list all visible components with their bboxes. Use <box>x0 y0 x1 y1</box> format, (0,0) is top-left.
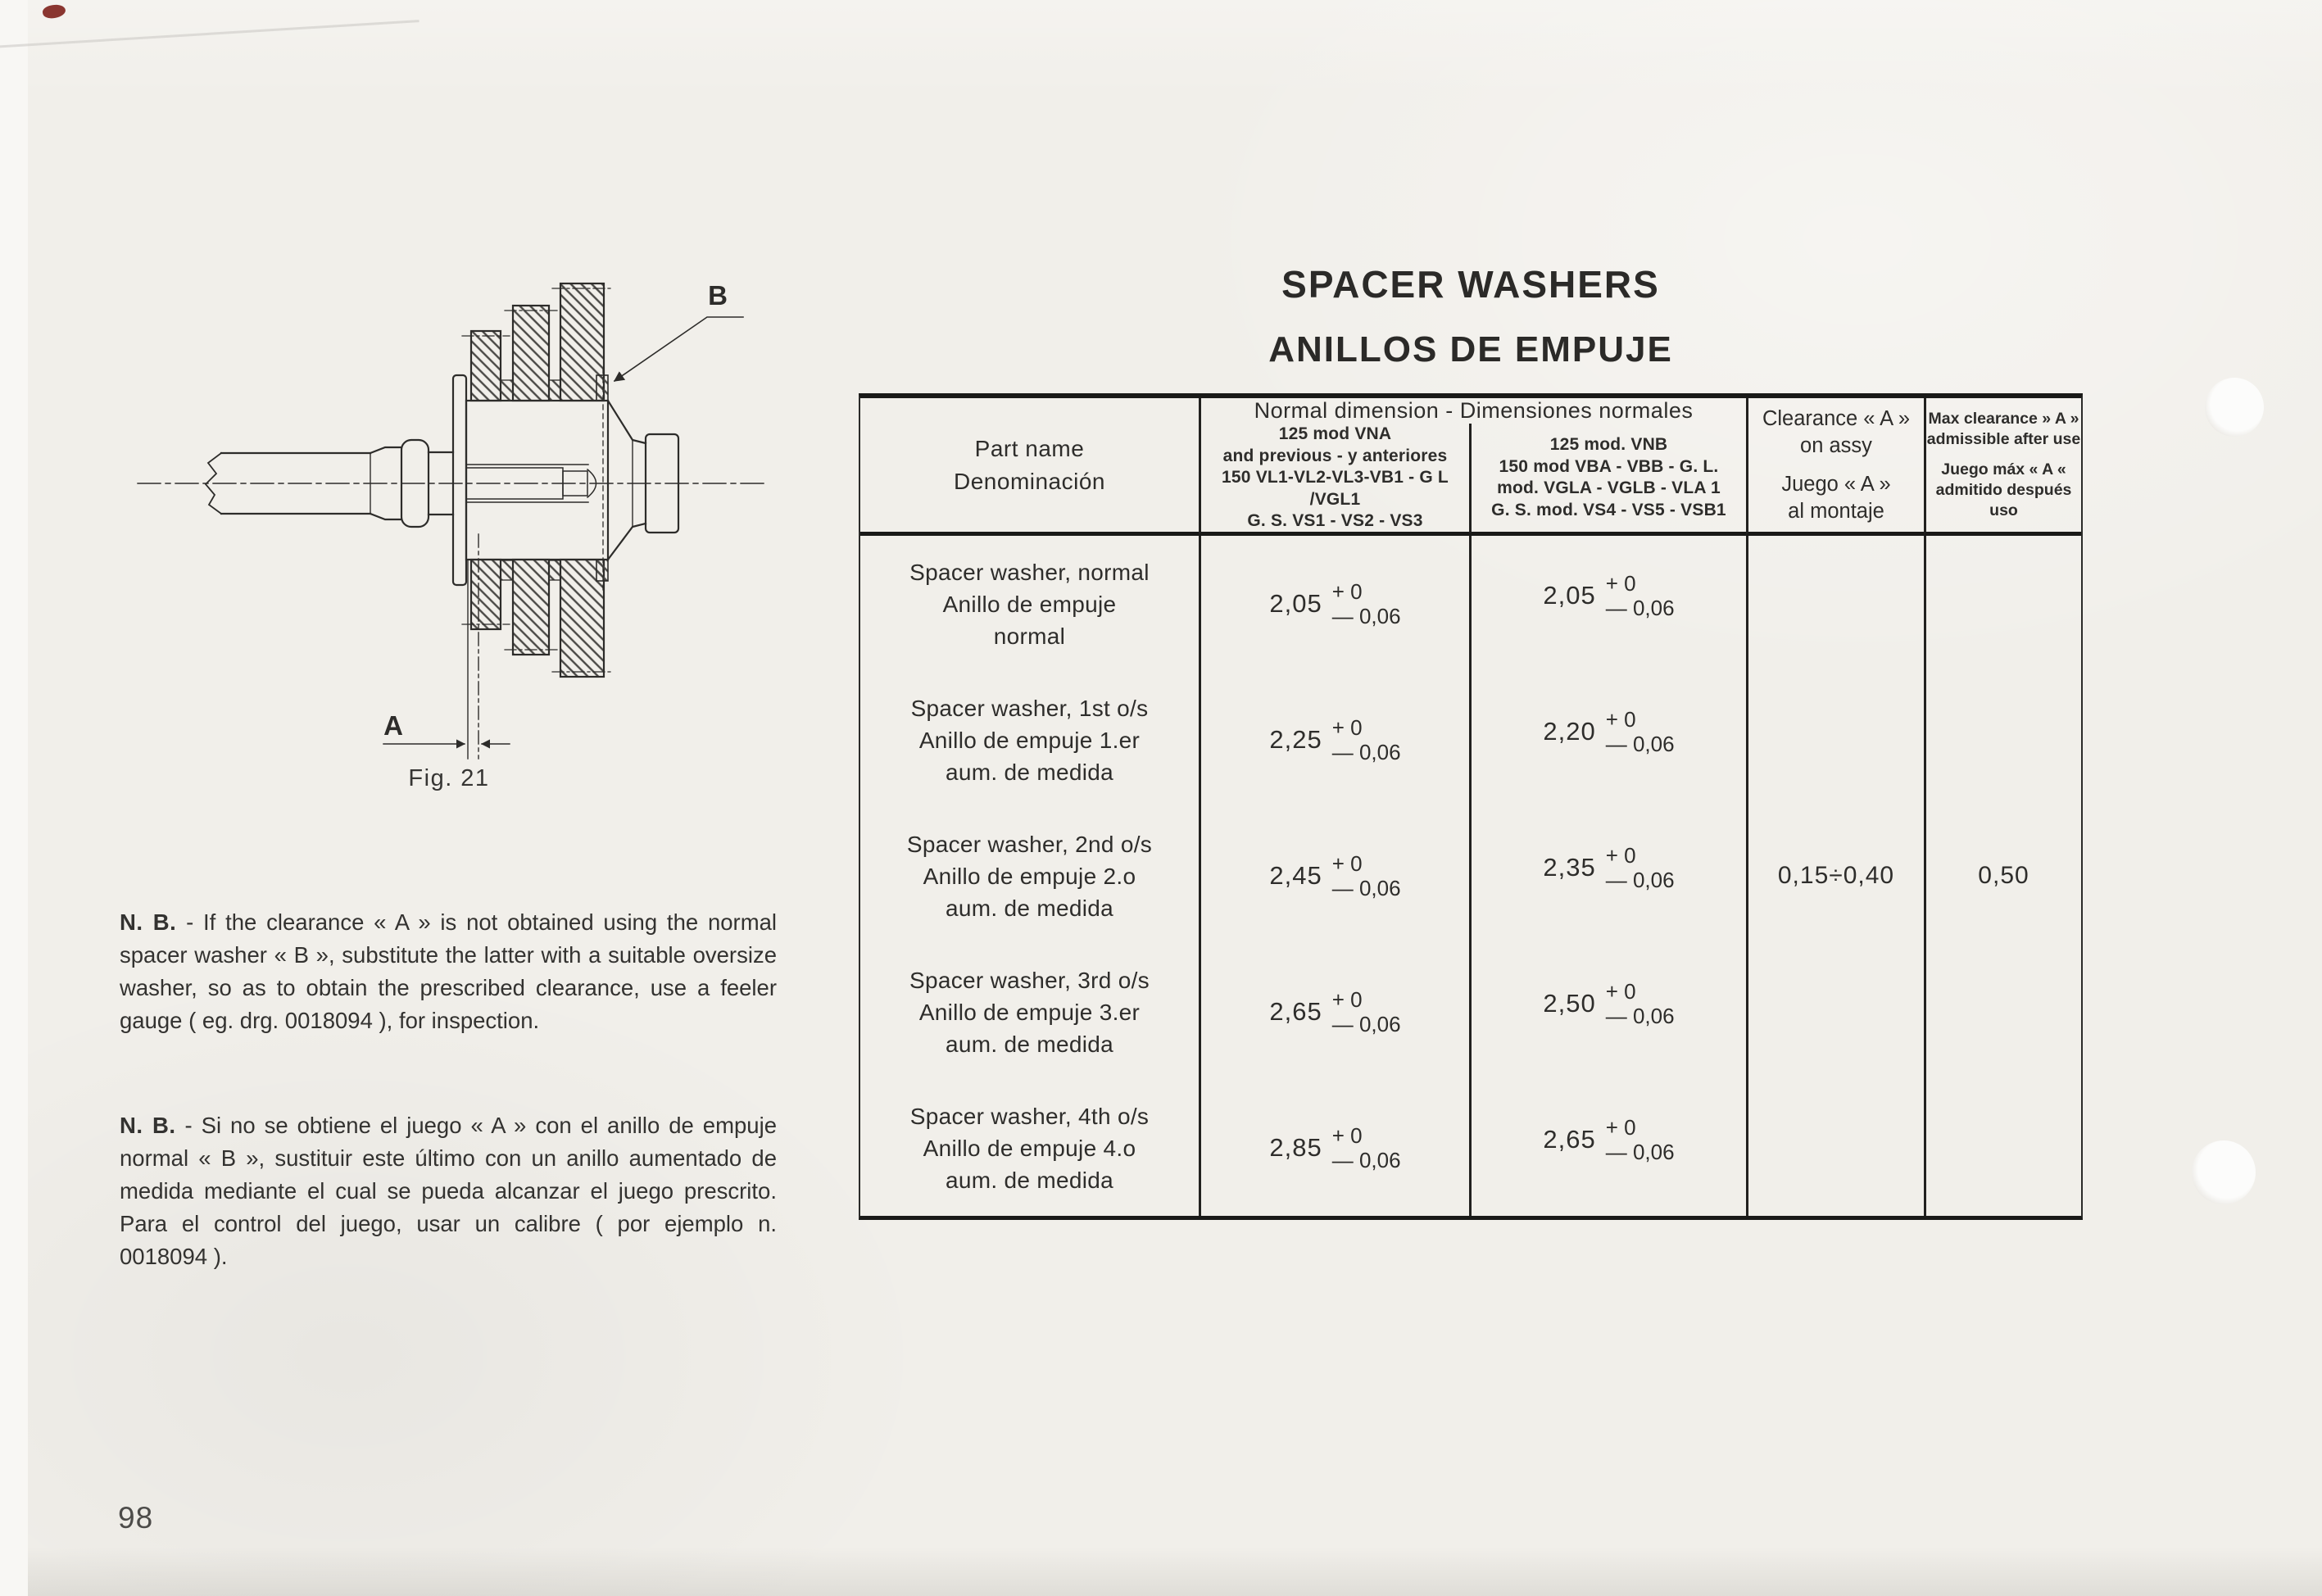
dimension-vnb: 2,65 + 0— 0,06 <box>1469 1080 1746 1216</box>
page-title-en: SPACER WASHERS <box>1204 262 1737 306</box>
dimension-vnb: 2,20 + 0— 0,06 <box>1469 672 1746 808</box>
vnb-line: 125 mod. VNB <box>1550 434 1668 456</box>
col-header-vna-models: 125 mod VNA and previous - y anteriores … <box>1201 424 1469 533</box>
vna-line: G. S. VS1 - VS2 - VS3 <box>1247 510 1422 533</box>
punch-hole <box>2192 1140 2256 1204</box>
figure-caption: Fig. 21 <box>383 765 515 792</box>
vnb-line: G. S. mod. VS4 - VS5 - VSB1 <box>1491 500 1726 522</box>
scan-smudge <box>0 20 420 48</box>
page-title-es: ANILLOS DE EMPUJE <box>1204 329 1737 370</box>
max-clearance-line: admitido después uso <box>1926 480 2081 521</box>
part-name-en: Part name <box>975 433 1085 465</box>
col-header-max-clearance: Max clearance » A » admissible after use… <box>1924 398 2081 536</box>
spacer-washer-table: Part name Denominación Normal dimension … <box>859 393 2083 1220</box>
col-header-vnb-models: 125 mod. VNB 150 mod VBA - VBB - G. L. m… <box>1469 424 1746 533</box>
gear-hub <box>466 401 608 560</box>
page-number: 98 <box>118 1501 153 1535</box>
note-english: N. B. - If the clearance « A » is not ob… <box>120 906 777 1037</box>
dimension-vna: 2,05 + 0— 0,06 <box>1199 536 1469 672</box>
part-name-es: Denominación <box>954 465 1105 498</box>
dimension-vna: 2,25 + 0— 0,06 <box>1199 672 1469 808</box>
spacer-washer-b-top <box>596 375 608 401</box>
vna-line: and previous - y anteriores <box>1223 446 1448 468</box>
scan-edge <box>0 0 28 1596</box>
table-row-name: Spacer washer, 3rd o/s Anillo de empuje … <box>860 944 1199 1080</box>
vna-line: 150 VL1-VL2-VL3-VB1 - G L /VGL1 <box>1201 467 1469 510</box>
dimension-vnb: 2,35 + 0— 0,06 <box>1469 808 1746 944</box>
clearance-line: Clearance « A » <box>1762 406 1910 433</box>
clearance-line: on assy <box>1800 433 1872 460</box>
table-row-name: Spacer washer, 1st o/s Anillo de empuje … <box>860 672 1199 808</box>
clearance-on-assy-value: 0,15÷0,40 <box>1746 536 1924 1216</box>
dimension-vna: 2,85 + 0— 0,06 <box>1199 1080 1469 1216</box>
clearance-line: al montaje <box>1788 498 1884 525</box>
fig21-diagram: A B <box>123 238 778 778</box>
normal-dimension-title: Normal dimension - Dimensiones normales <box>1201 398 1746 424</box>
gear-2-top <box>513 306 549 401</box>
dimension-vnb: 2,05 + 0— 0,06 <box>1469 536 1746 672</box>
dimension-vnb: 2,50 + 0— 0,06 <box>1469 944 1746 1080</box>
manual-page: SPACER WASHERS ANILLOS DE EMPUJE <box>0 0 2322 1596</box>
spacer-washer-b-bottom <box>596 560 608 581</box>
max-clearance-line: Juego máx « A « <box>1941 460 2066 480</box>
flange-disc <box>453 375 466 585</box>
max-clearance-line: Max clearance » A » <box>1929 409 2079 429</box>
table-row-name: Spacer washer, normal Anillo de empuje n… <box>860 536 1199 672</box>
max-clearance-line: admissible after use <box>1927 429 2081 450</box>
vnb-line: 150 mod VBA - VBB - G. L. <box>1499 456 1719 478</box>
red-ink-mark <box>42 3 66 20</box>
clearance-line: Juego « A » <box>1781 471 1890 498</box>
vna-line: 125 mod VNA <box>1279 424 1392 446</box>
note-lead: N. B. <box>120 909 176 935</box>
col-header-part-name: Part name Denominación <box>860 398 1199 536</box>
col-header-clearance: Clearance « A » on assy Juego « A » al m… <box>1746 398 1924 536</box>
punch-hole <box>2205 378 2264 437</box>
cone-hub <box>608 401 646 560</box>
dimension-vna: 2,65 + 0— 0,06 <box>1199 944 1469 1080</box>
label-b: B <box>708 280 728 311</box>
table-row-name: Spacer washer, 4th o/s Anillo de empuje … <box>860 1080 1199 1216</box>
table-row-name: Spacer washer, 2nd o/s Anillo de empuje … <box>860 808 1199 944</box>
label-a: A <box>383 710 403 741</box>
gear-2-bottom <box>513 560 549 655</box>
gear-1-bottom <box>471 560 501 629</box>
dimension-vna: 2,45 + 0— 0,06 <box>1199 808 1469 944</box>
max-clearance-value: 0,50 <box>1924 536 2081 1216</box>
note-spanish: N. B. - Si no se obtiene el juego « A » … <box>120 1109 777 1273</box>
gear-1-top <box>471 331 501 401</box>
vnb-line: mod. VGLA - VGLB - VLA 1 <box>1497 478 1721 500</box>
leader-b <box>615 317 743 381</box>
note-lead: N. B. <box>120 1113 175 1138</box>
col-header-normal-dimension: Normal dimension - Dimensiones normales … <box>1199 398 1746 536</box>
